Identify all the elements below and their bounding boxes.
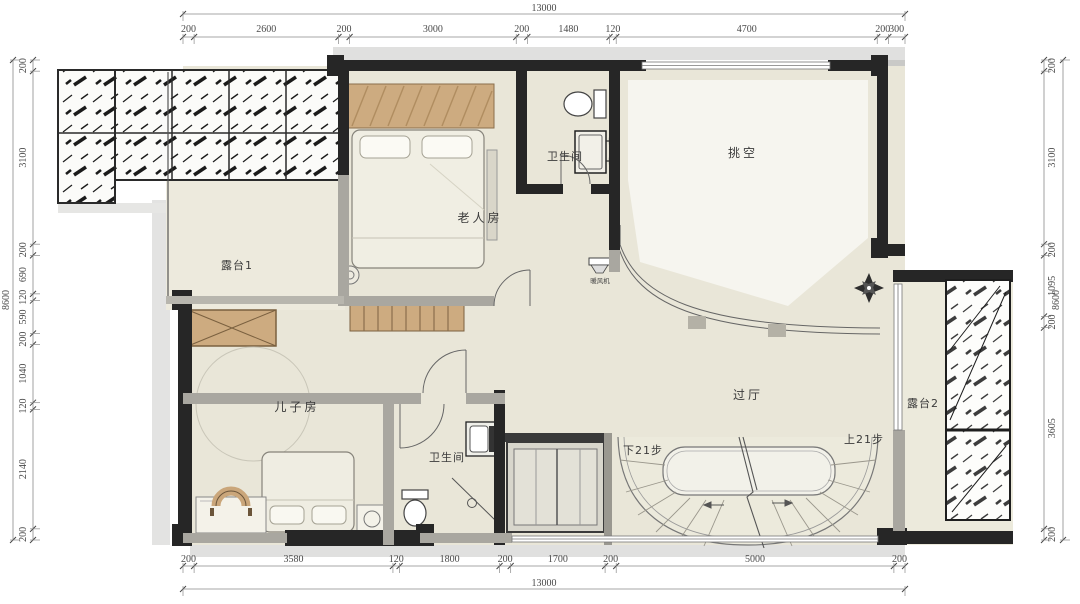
- dim-label: 200: [603, 554, 618, 565]
- dim-label: 2140: [18, 459, 29, 479]
- dim-label: 3580: [284, 554, 304, 565]
- vanity-bottom-icon: [466, 422, 495, 456]
- planter-box: [188, 310, 276, 346]
- label-elder-room: 老人房: [457, 210, 502, 225]
- dim-label: 200: [892, 554, 907, 565]
- terrace2-glass: [946, 280, 1010, 520]
- window-right: [894, 284, 902, 430]
- wardrobe-elder-room: [346, 84, 494, 128]
- label-hall: 过厅: [733, 388, 763, 402]
- window-top: [642, 62, 830, 69]
- dim-label: 2600: [256, 24, 276, 35]
- dim-label: 120: [605, 24, 620, 35]
- dim-label: 200: [181, 24, 196, 35]
- nightstand: [357, 505, 387, 533]
- dim-label: 200: [514, 24, 529, 35]
- dim-label: 3100: [18, 148, 29, 168]
- dim-label: 13000: [532, 3, 557, 14]
- bed-elder-room: [352, 130, 484, 268]
- toilet-bottom-icon: [402, 490, 428, 526]
- bed-son-room: [262, 452, 354, 532]
- dim-label: 8600: [1051, 290, 1062, 310]
- dim-label: 200: [337, 24, 352, 35]
- dim-label: 1480: [558, 24, 578, 35]
- dim-label: 3605: [1047, 418, 1058, 438]
- dim-label: 120: [18, 399, 29, 414]
- desk: [196, 497, 266, 533]
- label-stairs-down: 下21步: [623, 444, 663, 457]
- toilet-top-icon: [564, 90, 606, 118]
- bed-bench: [487, 150, 497, 240]
- label-bath-top: 卫生间: [547, 149, 583, 163]
- dim-label: 5000: [745, 554, 765, 565]
- dim-label: 590: [18, 310, 29, 325]
- elder-room-furniture: [341, 84, 497, 284]
- dim-label: 3100: [1047, 148, 1058, 168]
- label-terrace2: 露台2: [907, 396, 939, 410]
- floor-plan: 露台1 老人房 卫生间 挑空 过厅 儿子房 卫生间 露台2 下21步 上21步 …: [0, 0, 1080, 604]
- label-terrace1: 露台1: [221, 258, 253, 272]
- dim-label: 4700: [737, 24, 757, 35]
- label-equipment: 暖风机: [590, 276, 610, 285]
- dim-label: 200: [1047, 315, 1058, 330]
- dim-label: 1700: [548, 554, 568, 565]
- dim-label: 200: [1047, 58, 1058, 73]
- elevator-cabinet: [507, 442, 604, 532]
- dim-label: 13000: [532, 578, 557, 589]
- dim-label: 200: [1047, 242, 1058, 257]
- dim-label: 8600: [1, 290, 12, 310]
- dim-label: 200: [875, 24, 890, 35]
- label-bath-bottom: 卫生间: [429, 450, 465, 464]
- dim-label: 3000: [423, 24, 443, 35]
- dim-label: 690: [18, 267, 29, 282]
- dim-label: 200: [498, 554, 513, 565]
- dim-label: 300: [889, 24, 904, 35]
- window-bottom: [512, 536, 878, 542]
- label-son-room: 儿子房: [274, 399, 319, 414]
- dim-label: 1800: [440, 554, 460, 565]
- dim-label: 1040: [18, 364, 29, 384]
- dim-label: 200: [18, 242, 29, 257]
- label-void: 挑空: [728, 146, 758, 160]
- dim-label: 120: [18, 290, 29, 305]
- dim-label: 120: [389, 554, 404, 565]
- dim-label: 200: [181, 554, 196, 565]
- label-stairs-up: 上21步: [844, 433, 884, 446]
- dim-label: 200: [1047, 527, 1058, 542]
- dim-label: 200: [18, 332, 29, 347]
